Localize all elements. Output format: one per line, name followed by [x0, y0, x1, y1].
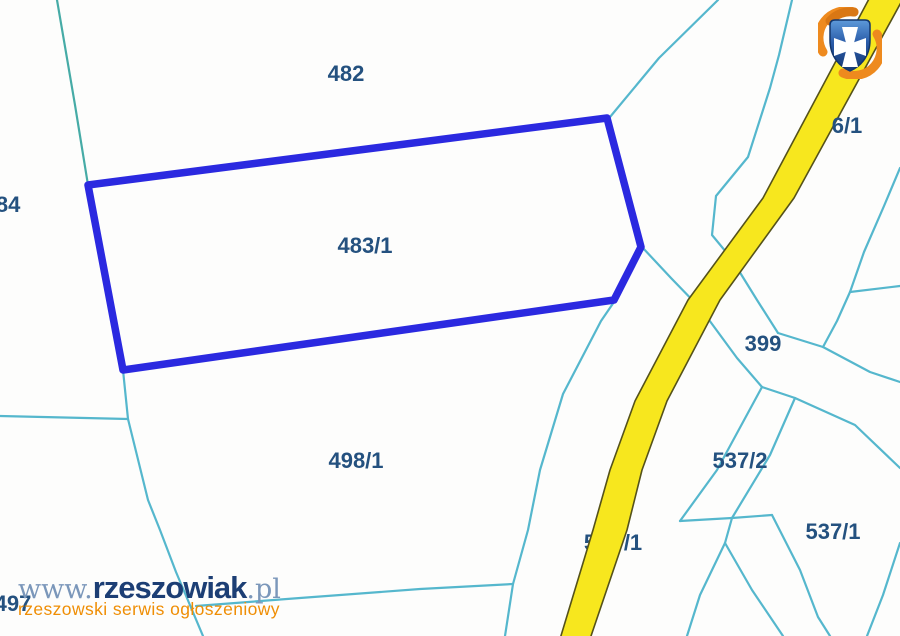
boundary-line — [867, 543, 900, 636]
boundary-line — [725, 543, 783, 636]
boundary-line — [680, 515, 772, 521]
parcel-label-484: 484 — [0, 192, 21, 217]
parcel-label-482: 482 — [328, 61, 365, 86]
parcel-label-498-1: 498/1 — [328, 448, 383, 473]
site-watermark: www.rzeszowiak.pl rzeszowski serwis ogło… — [18, 572, 281, 619]
boundary-line — [0, 416, 128, 419]
boundary-line — [778, 333, 900, 382]
parcel-label-537-1: 537/1 — [805, 519, 860, 544]
map-canvas[interactable]: 5 /1 484 482 483/1 497 498/1 399 537/2 5… — [0, 0, 900, 636]
road-parcel-label-fragment-right: /1 — [624, 530, 642, 555]
parcel-map: 5 /1 484 482 483/1 497 498/1 399 537/2 5… — [0, 0, 900, 636]
watermark-url: www.rzeszowiak.pl — [18, 572, 281, 600]
parcel-boundaries — [0, 0, 900, 636]
boundary-line — [850, 286, 900, 292]
watermark-tagline: rzeszowski serwis ogłoszeniowy — [18, 601, 281, 619]
boundary-line — [823, 168, 900, 347]
logo-shield — [830, 20, 870, 71]
boundary-line — [57, 0, 88, 185]
parcel-label-483-1: 483/1 — [337, 233, 392, 258]
parcel-label-537-2: 537/2 — [712, 448, 767, 473]
parcel-label-6-1: 6/1 — [832, 113, 863, 138]
boundary-line — [610, 0, 718, 117]
parcel-label-399: 399 — [745, 331, 782, 356]
rzeszow-crest-logo — [818, 7, 882, 79]
